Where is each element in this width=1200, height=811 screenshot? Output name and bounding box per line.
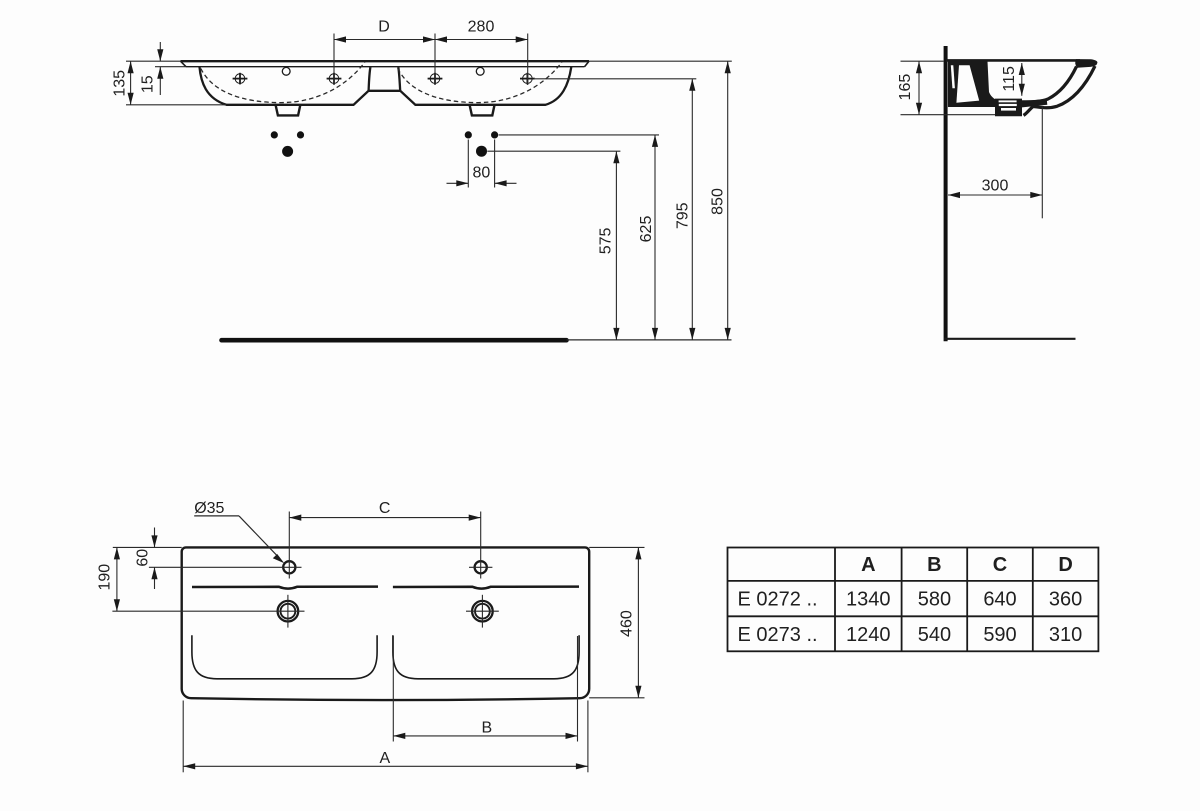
svg-text:575: 575 bbox=[598, 227, 615, 254]
svg-text:135: 135 bbox=[112, 70, 129, 97]
svg-text:A: A bbox=[861, 554, 875, 576]
svg-text:625: 625 bbox=[638, 216, 655, 243]
svg-text:A: A bbox=[379, 750, 390, 767]
svg-text:115: 115 bbox=[1001, 66, 1018, 92]
svg-text:360: 360 bbox=[1049, 589, 1082, 611]
svg-text:Ø35: Ø35 bbox=[194, 500, 224, 517]
svg-text:795: 795 bbox=[674, 202, 691, 229]
svg-text:280: 280 bbox=[468, 18, 495, 35]
svg-text:15: 15 bbox=[139, 75, 156, 93]
svg-text:C: C bbox=[993, 554, 1007, 576]
svg-text:580: 580 bbox=[918, 589, 951, 611]
svg-text:300: 300 bbox=[982, 177, 1009, 194]
svg-text:E 0272 ..: E 0272 .. bbox=[738, 589, 818, 611]
svg-text:60: 60 bbox=[135, 549, 152, 567]
svg-text:165: 165 bbox=[897, 74, 914, 101]
svg-text:460: 460 bbox=[619, 610, 636, 637]
svg-text:190: 190 bbox=[96, 564, 113, 591]
svg-text:540: 540 bbox=[918, 624, 951, 646]
svg-text:D: D bbox=[378, 18, 390, 35]
svg-text:1240: 1240 bbox=[846, 624, 891, 646]
svg-text:E 0273 ..: E 0273 .. bbox=[738, 624, 818, 646]
svg-text:C: C bbox=[379, 500, 391, 517]
svg-text:B: B bbox=[927, 554, 941, 576]
svg-text:1340: 1340 bbox=[846, 589, 891, 611]
svg-text:850: 850 bbox=[710, 188, 727, 215]
svg-text:590: 590 bbox=[983, 624, 1016, 646]
svg-text:D: D bbox=[1058, 554, 1072, 576]
svg-text:B: B bbox=[481, 719, 492, 736]
svg-text:640: 640 bbox=[983, 589, 1016, 611]
svg-text:80: 80 bbox=[473, 165, 491, 182]
svg-text:310: 310 bbox=[1049, 624, 1082, 646]
